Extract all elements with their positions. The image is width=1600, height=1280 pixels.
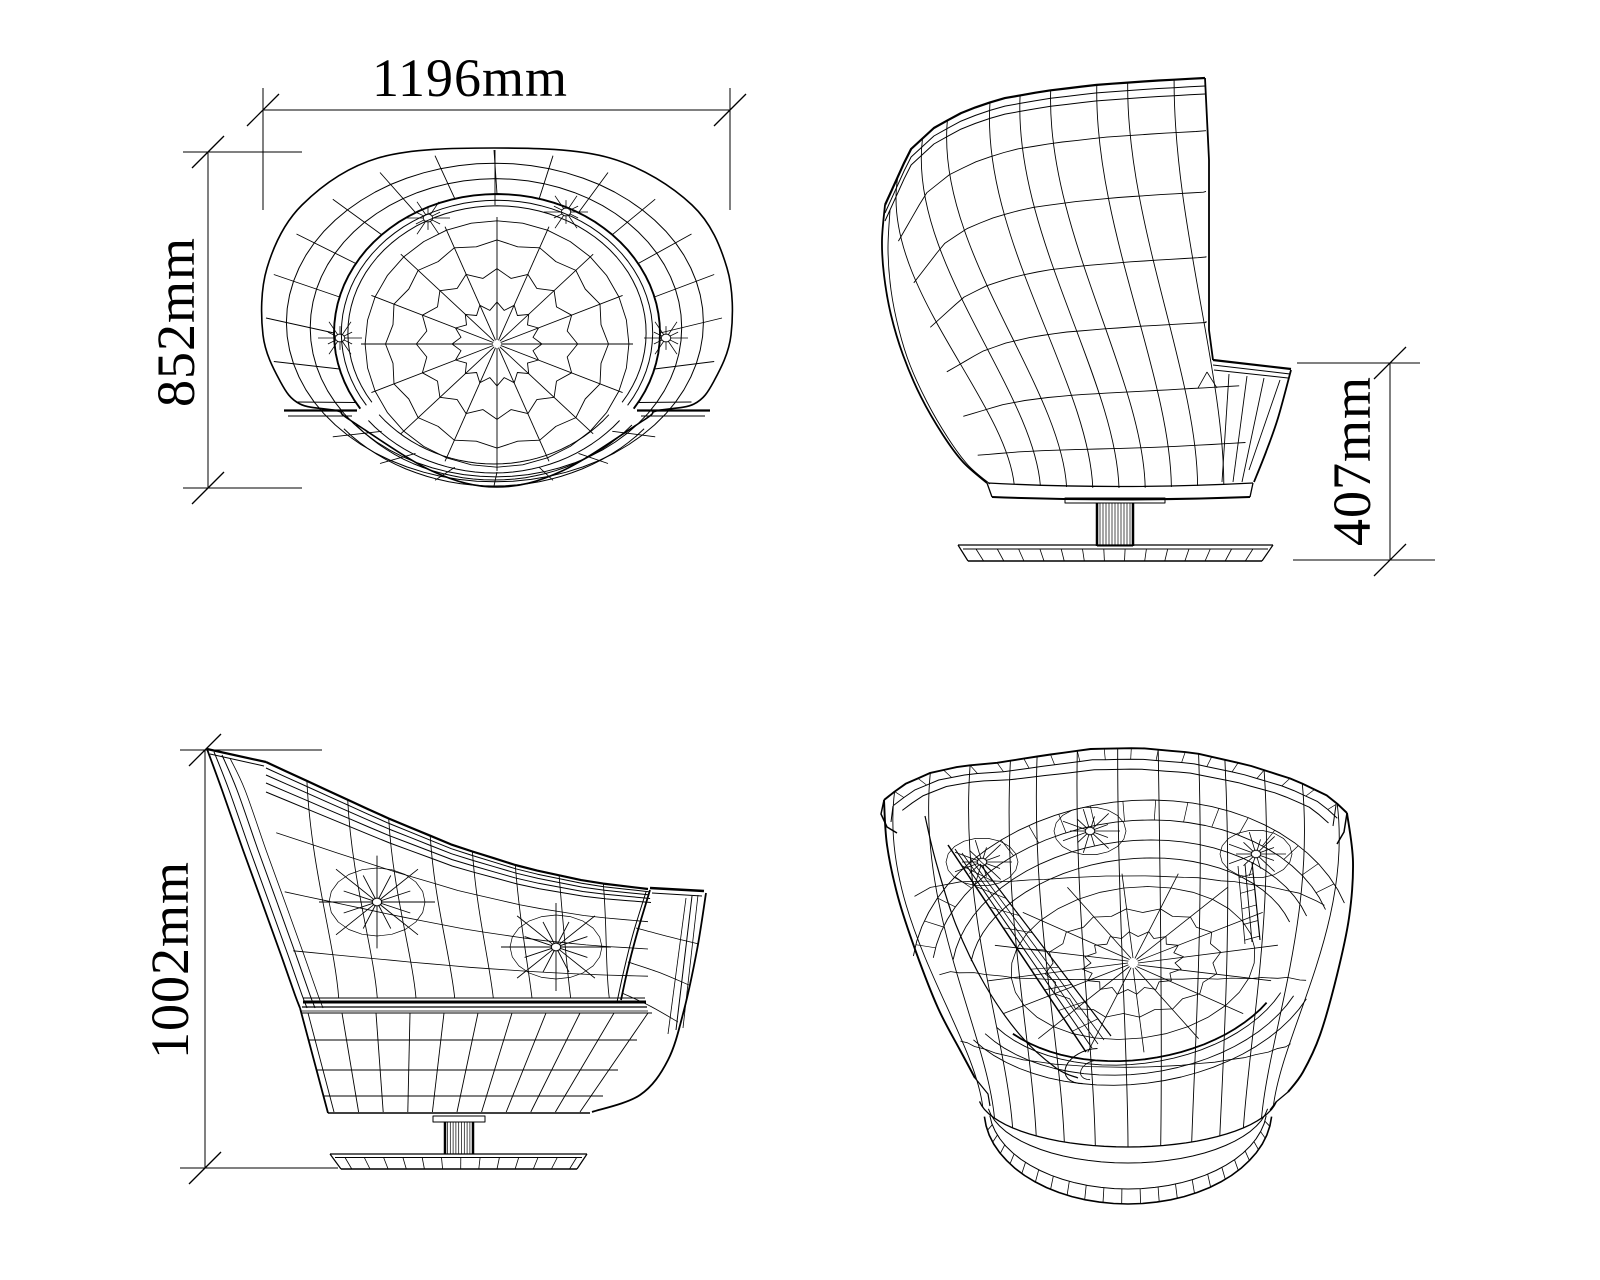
drawing-sheet: 1196mm 852mm 407mm 1002mm (0, 0, 1600, 1280)
drawing-canvas: 1196mm 852mm 407mm 1002mm (0, 0, 1600, 1280)
dimension-label-seat-height: 407mm (1322, 376, 1382, 546)
dimension-label-width: 1196mm (372, 48, 568, 108)
paper-background (0, 0, 1600, 1280)
dimension-label-overall-height: 1002mm (140, 861, 200, 1059)
dimension-label-depth: 852mm (146, 237, 206, 407)
